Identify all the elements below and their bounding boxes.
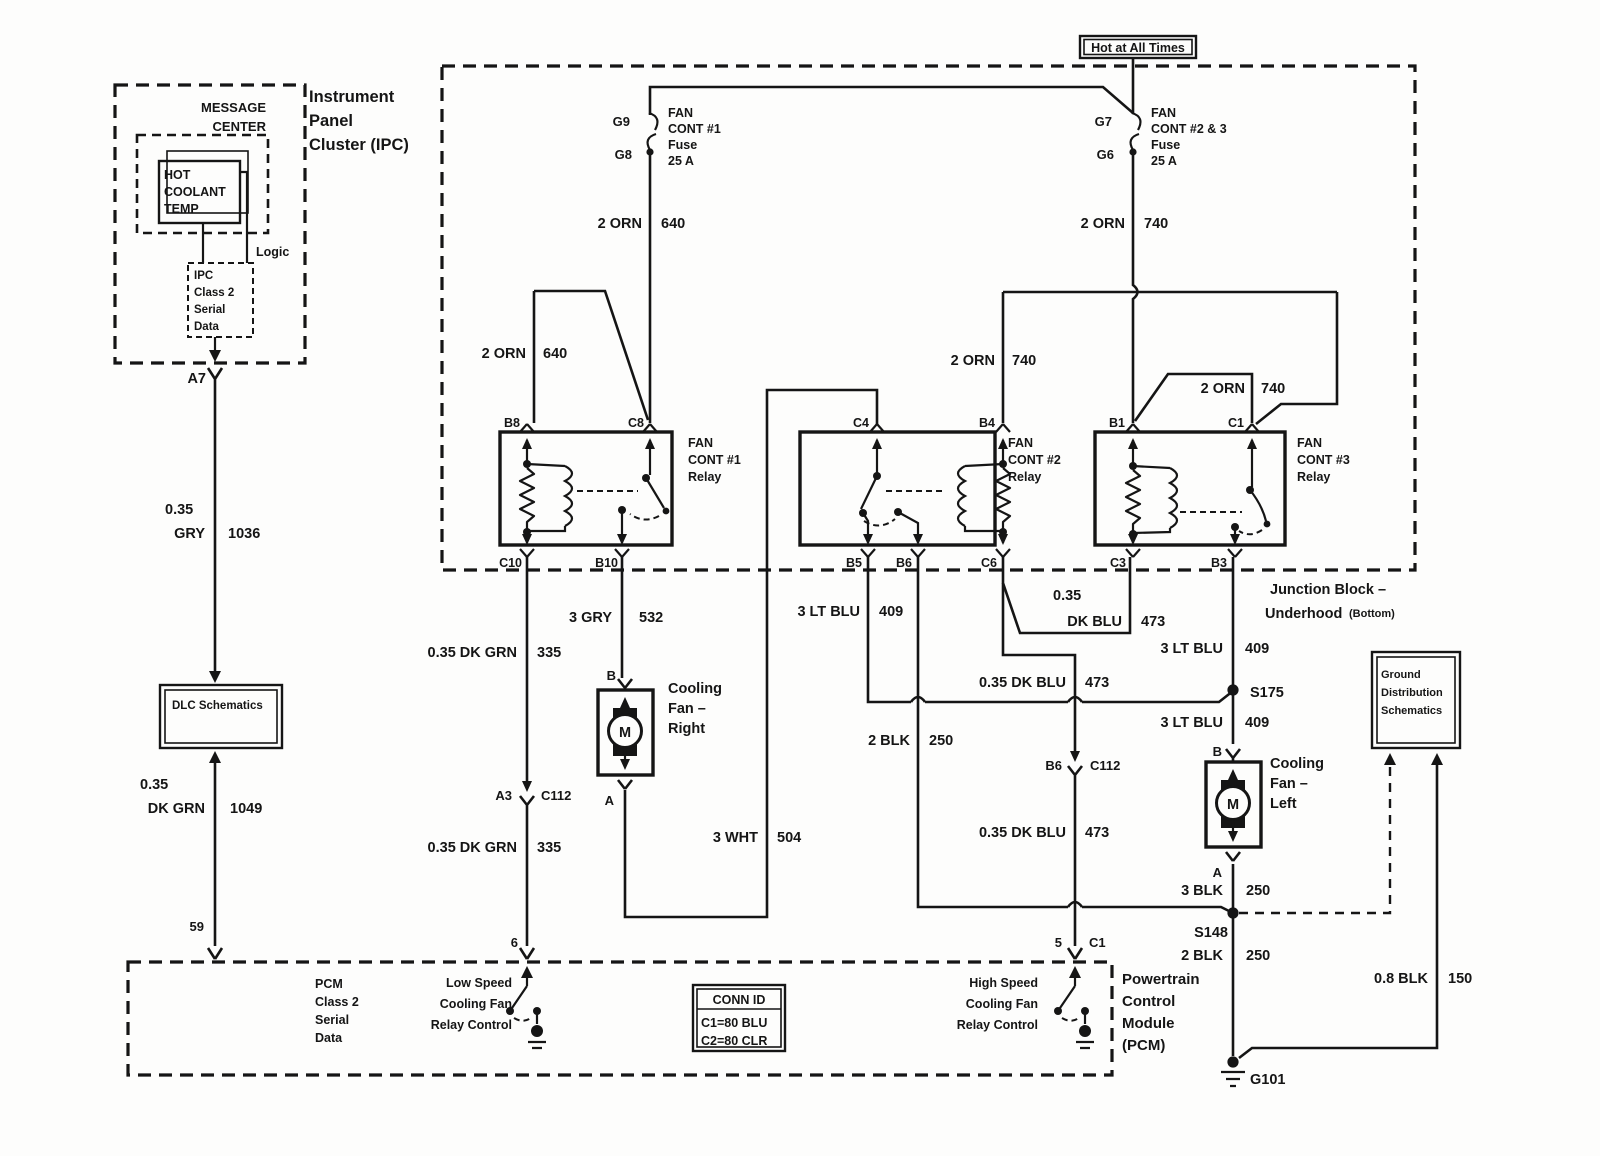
cooling-fan-left: B M A Cooling Fan – Left: [1206, 744, 1324, 880]
fan-cont-2-relay: FAN CONT #2 Relay C4 B4 B5 B6 C6: [800, 416, 1061, 570]
down-arrow-icon: [209, 350, 221, 362]
up-arrow-icon: [620, 697, 630, 708]
pcm-pin-5-c1-label: C1: [1089, 935, 1106, 950]
splice-s148-dot: [1227, 907, 1238, 918]
low-speed-ground-icon: [528, 1042, 546, 1048]
g101-ground-dot: [1227, 1056, 1238, 1067]
wire-gry1036-circuit: 1036: [228, 526, 260, 542]
low-speed-label-1: Low Speed: [446, 976, 512, 990]
relay1-name-2: CONT #1: [688, 453, 741, 467]
fan-left-pin-b: B: [1213, 744, 1222, 759]
connector-b6-c112-label: C112: [1090, 758, 1120, 773]
fuse1-name-2: CONT #1: [668, 122, 721, 136]
fan-left-name-1: Cooling: [1270, 756, 1324, 772]
fuse2-element-top: [1132, 113, 1140, 130]
a7-connector-and-wire: [208, 368, 222, 674]
wire-ltblu409dn-r: 409: [1245, 715, 1269, 731]
wire-orn740-b4-r: 740: [1012, 353, 1036, 369]
fuse1-pin-g8: G8: [615, 147, 632, 162]
fan-right-pin-a: A: [605, 793, 615, 808]
wire-orn740-b4-l: 2 ORN: [951, 353, 995, 369]
message-center-label-1: MESSAGE: [201, 100, 266, 115]
fan-right-name-2: Fan –: [668, 701, 706, 717]
splice-s175-label: S175: [1250, 685, 1284, 701]
down-arrow-icon: [620, 759, 630, 770]
hot-coolant-temp-3: TEMP: [164, 202, 199, 216]
fan-left-motor-m: M: [1227, 797, 1239, 813]
wire-orn740-fuse-r: 740: [1144, 216, 1168, 232]
connector-a3-label: A3: [495, 788, 512, 803]
wire-orn640-b8-l: 2 ORN: [482, 346, 526, 362]
wiring-diagram-page: Instrument Panel Cluster (IPC) MESSAGE C…: [0, 0, 1600, 1156]
wire-blk250fan-r: 250: [1246, 883, 1270, 899]
up-arrow-icon: [1069, 966, 1081, 978]
up-arrow-icon: [1247, 438, 1257, 449]
wire-blk250relay-r: 250: [929, 733, 953, 749]
powertrain-control-module: PCM Class 2 Serial Data Low Speed Coolin…: [128, 962, 1200, 1075]
wire-gry1036-color: GRY: [174, 526, 205, 542]
dlc-schematics-label: DLC Schematics: [172, 700, 263, 712]
relay3-contact-arc-dashed: [1239, 530, 1262, 534]
g101-label: G101: [1250, 1072, 1285, 1088]
fan-cont-1-fuse: G9 G8 FAN CONT #1 Fuse 25 A 2 ORN 640 2 …: [482, 106, 721, 423]
wire-dkgrn1049-circuit: 1049: [230, 801, 262, 817]
top-power-rail: [650, 87, 1133, 115]
relay2-pin-b6: B6: [896, 556, 912, 570]
down-arrow-icon: [1228, 831, 1238, 842]
relay2-name-1: FAN: [1008, 436, 1033, 450]
wire-blk150-l: 0.8 BLK: [1374, 971, 1429, 987]
up-arrow-icon: [998, 438, 1008, 449]
wire-dkgrn1049-size: 0.35: [140, 777, 168, 793]
relay1-switch-blade: [646, 478, 664, 508]
ipc-class2-3: Serial: [194, 304, 225, 316]
fan-right-motor-m: M: [619, 725, 631, 741]
low-speed-contact1-dot: [506, 1007, 514, 1015]
fuse1-pin-g9: G9: [613, 114, 630, 129]
ipc-title-2: Panel: [309, 112, 353, 130]
wire-gry532-l: 3 GRY: [569, 610, 612, 626]
ground-dist-label-3: Schematics: [1381, 705, 1442, 717]
relay2-contact2-dot: [894, 508, 902, 516]
instrument-panel-cluster: Instrument Panel Cluster (IPC) MESSAGE C…: [115, 85, 409, 387]
high-speed-ground-dot: [1079, 1025, 1091, 1037]
wire-blk150-r: 150: [1448, 971, 1472, 987]
wire-orn740-fuse-l: 2 ORN: [1081, 216, 1125, 232]
hot-coolant-temp-1: HOT: [164, 168, 191, 182]
relay2-pin-c4: C4: [853, 416, 869, 430]
wire-ltblu409up-l: 3 LT BLU: [1160, 641, 1223, 657]
relay2-pin-c6: C6: [981, 556, 997, 570]
relay3-name-3: Relay: [1297, 470, 1330, 484]
relay2-name-2: CONT #2: [1008, 453, 1061, 467]
low-speed-label-2: Cooling Fan: [440, 997, 512, 1011]
c1-feed-wire: [1256, 292, 1337, 424]
fan-left-name-2: Fan –: [1270, 776, 1308, 792]
low-speed-label-3: Relay Control: [431, 1018, 512, 1032]
junction-block-label-2b: (Bottom): [1349, 608, 1395, 620]
wire-orn640-fuse-l: 2 ORN: [598, 216, 642, 232]
conn-id-row-1: C1=80 BLU: [701, 1016, 767, 1030]
power-feed: Hot at All Times: [650, 36, 1196, 115]
c112-b6-connector-and-wire: [1068, 766, 1082, 946]
conn-id-table: CONN ID C1=80 BLU C2=80 CLR: [693, 985, 785, 1051]
wire-dkblu473low-l: 0.35 DK BLU: [979, 825, 1066, 841]
pcm-pin-6-label: 6: [511, 935, 518, 950]
ipc-class2-1: IPC: [194, 270, 213, 282]
high-speed-switch-blade: [1060, 977, 1075, 1008]
junction-block-label-1: Junction Block –: [1270, 582, 1386, 598]
wire-blk250relay-l: 2 BLK: [868, 733, 910, 749]
fuse1-name-3: Fuse: [668, 138, 697, 152]
high-speed-contact1-dot: [1054, 1007, 1062, 1015]
hot-coolant-temp-2: COOLANT: [164, 185, 226, 199]
relay3-pin-b3: B3: [1211, 556, 1227, 570]
relay1-contact-arc-dashed: [630, 514, 659, 520]
c112-b6-arrow-icon: [1070, 751, 1080, 762]
relay1-pin-b10: B10: [595, 556, 618, 570]
pin-6-connector-icon: [520, 948, 534, 959]
pcm-serial-1: PCM: [315, 977, 343, 991]
g101-ground-icon: [1221, 1072, 1245, 1086]
wire-orn640-fuse-r: 640: [661, 216, 685, 232]
pcm-serial-2: Class 2: [315, 995, 359, 1009]
up-arrow-icon: [522, 438, 532, 449]
low-speed-ground-dot: [531, 1025, 543, 1037]
low-speed-switch-arc-dashed: [514, 1017, 532, 1021]
pcm-serial-4: Data: [315, 1031, 343, 1045]
relay3-name-2: CONT #3: [1297, 453, 1350, 467]
pin-5-connector-icon: [1068, 948, 1082, 959]
relay1-name-3: Relay: [688, 470, 721, 484]
fuse2-name-4: 25 A: [1151, 154, 1177, 168]
down-arrow-icon: [209, 671, 221, 683]
junction-block: Junction Block – Underhood (Bottom): [442, 66, 1415, 622]
dlc-schematics-box-inner: [165, 690, 277, 743]
wire-blk250gnd-l: 2 BLK: [1181, 948, 1223, 964]
ground-distribution-schematics: Ground Distribution Schematics: [1372, 652, 1460, 748]
relay2-name-3: Relay: [1008, 470, 1041, 484]
fan-left-a-connector-icon: [1226, 852, 1240, 861]
connector-a3-c112-label: C112: [541, 788, 571, 803]
relay2-pin-b5: B5: [846, 556, 862, 570]
fan-cont-3-relay: FAN CONT #3 Relay B1 C1 C3 B3: [1095, 416, 1350, 570]
wire-dkblu473low-r: 473: [1085, 825, 1109, 841]
relay3-name-1: FAN: [1297, 436, 1322, 450]
relay2-switch-blade: [861, 476, 877, 509]
wire-dkblu473mid-l: 0.35 DK BLU: [979, 675, 1066, 691]
up-arrow-icon: [521, 966, 533, 978]
fan-left-b-connector-icon: [1226, 749, 1240, 762]
wire-wht504-l: 3 WHT: [713, 830, 758, 846]
wire-dkblu473jb-size: 0.35: [1053, 588, 1081, 604]
ground-dist-label-1: Ground: [1381, 669, 1421, 681]
fuse2-name-1: FAN: [1151, 106, 1176, 120]
pcm-name-1: Powertrain: [1122, 971, 1200, 988]
high-speed-label-1: High Speed: [969, 976, 1038, 990]
wire-dkgrn1049-color: DK GRN: [148, 801, 205, 817]
ground-dist-label-2: Distribution: [1381, 687, 1443, 699]
up-arrow-icon: [1431, 753, 1443, 765]
relay3-pin-c1: C1: [1228, 416, 1244, 430]
wire-dkblu473jb-circuit: 473: [1141, 614, 1165, 630]
high-speed-switch-arc-dashed: [1062, 1017, 1080, 1021]
fuse2-name-2: CONT #2 & 3: [1151, 122, 1227, 136]
ipc-title-1: Instrument: [309, 88, 395, 106]
relay1-pin-c8: C8: [628, 416, 644, 430]
fuse2-element-bottom: [1131, 134, 1139, 150]
blk150-wire: [1239, 764, 1437, 1058]
c112-a3-connector-and-wire: [520, 796, 534, 946]
down-arrow-icon: [998, 534, 1008, 545]
high-speed-ground-icon: [1076, 1042, 1094, 1048]
pin-a7-label: A7: [187, 371, 206, 387]
fuse2-pin-g7: G7: [1095, 114, 1112, 129]
pin-59-connector-icon: [208, 948, 222, 959]
fan-cont-1-relay: FAN CONT #1 Relay B8 C8 C10 B10: [499, 416, 741, 570]
ipc-class2-4: Data: [194, 321, 220, 333]
fuse2-pin-g6: G6: [1097, 147, 1114, 162]
fan-right-a-connector-icon: [618, 780, 632, 789]
fan-left-name-3: Left: [1270, 796, 1297, 812]
dlc-schematics-box: [160, 685, 282, 748]
wire-dkgrn335a-r: 335: [537, 645, 561, 661]
ipc-title-3: Cluster (IPC): [309, 136, 409, 154]
connector-b6-label: B6: [1045, 758, 1062, 773]
relay2-pin-b4: B4: [979, 416, 995, 430]
relay1-pin-c10: C10: [499, 556, 522, 570]
fan-left-pin-a: A: [1213, 865, 1223, 880]
fuse2-output-wire: [1133, 152, 1138, 423]
ipc-class2-2: Class 2: [194, 287, 234, 299]
wire-dkgrn335b-r: 335: [537, 840, 561, 856]
relay1-name-1: FAN: [688, 436, 713, 450]
relay1-pin-b8: B8: [504, 416, 520, 430]
splice-s148-label: S148: [1194, 925, 1228, 941]
wire-ltblu409b5-r: 409: [879, 604, 903, 620]
circuit-wiring: 0.35 DK GRN 335 A3 C112 0.35 DK GRN 335 …: [428, 390, 1473, 1088]
conn-id-title: CONN ID: [713, 993, 766, 1007]
up-arrow-icon: [645, 438, 655, 449]
splice-s175-dot: [1227, 684, 1238, 695]
fuse1-element-bottom: [648, 134, 656, 150]
pcm-pin-5-label: 5: [1055, 935, 1062, 950]
wire-dkgrn335b-l: 0.35 DK GRN: [428, 840, 517, 856]
hot-at-all-times-label: Hot at All Times: [1091, 41, 1185, 55]
relay3-pin-b1: B1: [1109, 416, 1125, 430]
wire-blk250fan-l: 3 BLK: [1181, 883, 1223, 899]
wire-ltblu409b5-l: 3 LT BLU: [797, 604, 860, 620]
wire-orn740-c1-l: 2 ORN: [1201, 381, 1245, 397]
relay3-switch-blade: [1250, 490, 1266, 521]
fan-right-pin-b: B: [607, 668, 616, 683]
fuse1-name-1: FAN: [668, 106, 693, 120]
conn-id-row-2: C2=80 CLR: [701, 1034, 767, 1048]
wire-ltblu409up-r: 409: [1245, 641, 1269, 657]
wire-orn740-c1-r: 740: [1261, 381, 1285, 397]
wire-orn640-b8-r: 640: [543, 346, 567, 362]
up-arrow-icon: [872, 438, 882, 449]
cooling-fan-right: B M A Cooling Fan – Right: [598, 668, 722, 808]
fuse1-name-4: 25 A: [668, 154, 694, 168]
junction-block-label-2: Underhood: [1265, 606, 1342, 622]
left-serial-data-column: 0.35 GRY 1036 DLC Schematics 0.35 DK GRN…: [140, 368, 282, 959]
wire-dkblu473jb-color: DK BLU: [1067, 614, 1122, 630]
fan-cont-2-3-fuse: G7 G6 FAN CONT #2 & 3 Fuse 25 A 2 ORN 74…: [951, 106, 1337, 424]
up-arrow-icon: [1228, 769, 1238, 780]
relay3-resistor: [1126, 470, 1140, 531]
pcm-pin-59-label: 59: [190, 919, 204, 934]
fuse2-name-3: Fuse: [1151, 138, 1180, 152]
up-arrow-icon: [1128, 438, 1138, 449]
high-speed-label-2: Cooling Fan: [966, 997, 1038, 1011]
logic-label: Logic: [256, 245, 289, 259]
ground-dist-box: [1372, 652, 1460, 748]
up-arrow-icon: [1384, 753, 1396, 765]
high-speed-label-3: Relay Control: [957, 1018, 1038, 1032]
relay1-resistor: [520, 468, 534, 529]
wire-wht504-r: 504: [777, 830, 801, 846]
relay3-pin-c3: C3: [1110, 556, 1126, 570]
fan-right-name-1: Cooling: [668, 681, 722, 697]
wire-dkblu473mid-r: 473: [1085, 675, 1109, 691]
message-center-label-2: CENTER: [213, 119, 267, 134]
wire-blk250gnd-r: 250: [1246, 948, 1270, 964]
junction-block-box: [442, 66, 1415, 570]
pcm-serial-3: Serial: [315, 1013, 349, 1027]
low-speed-switch-blade: [512, 977, 527, 1008]
relay3-switch-open-dot: [1264, 521, 1271, 528]
cooling-fan-wiring-diagram: Instrument Panel Cluster (IPC) MESSAGE C…: [0, 0, 1600, 1156]
wire-dkgrn335a-l: 0.35 DK GRN: [428, 645, 517, 661]
dkblu473-drop-wire: [1003, 583, 1075, 752]
pcm-name-2: Control: [1122, 993, 1175, 1010]
pcm-name-3: Module: [1122, 1015, 1175, 1032]
relay1-switch-open-dot: [663, 508, 670, 515]
wire-gry532-r: 532: [639, 610, 663, 626]
wire-ltblu409dn-l: 3 LT BLU: [1160, 715, 1223, 731]
pcm-name-4: (PCM): [1122, 1037, 1165, 1054]
wire-gry1036-size: 0.35: [165, 502, 193, 518]
c112-a3-arrow-icon: [522, 781, 532, 792]
fan-right-name-3: Right: [668, 721, 705, 737]
fuse1-element-top: [649, 113, 657, 130]
